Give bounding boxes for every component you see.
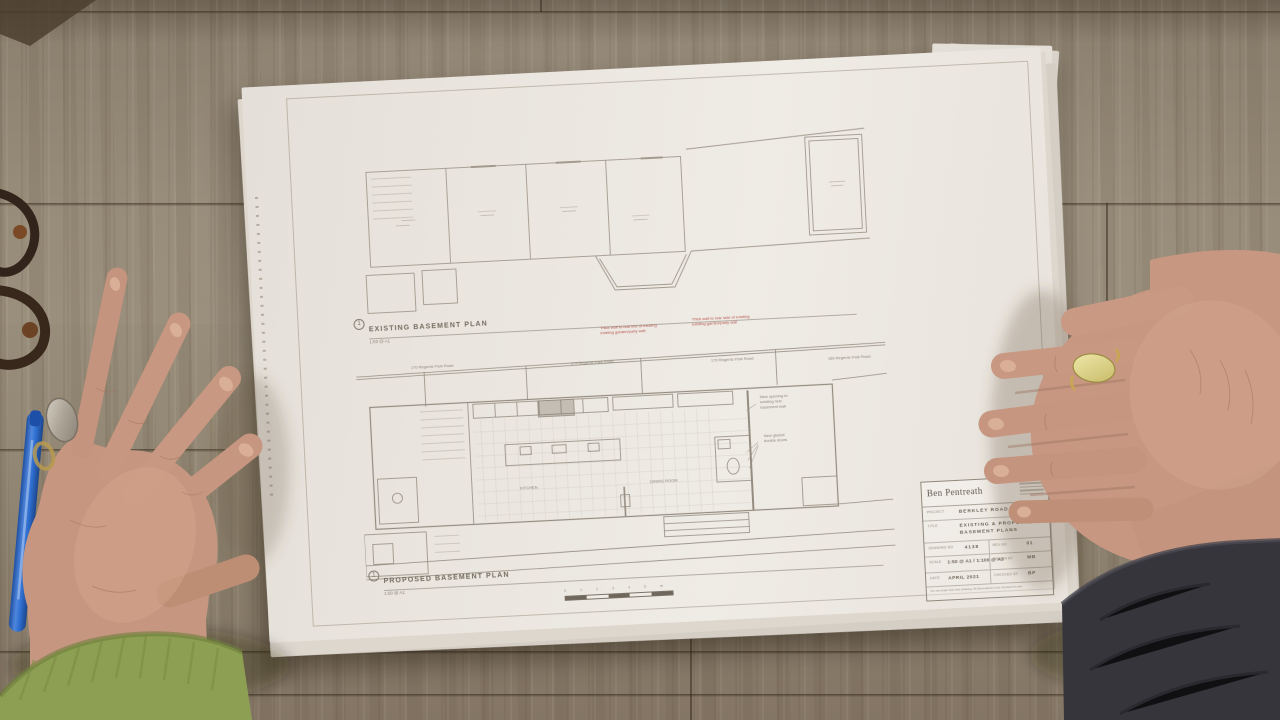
drawing-sheet: 1 EXISTING BASEMENT PLAN 1:50 @ A1 Thick…: [241, 47, 1068, 643]
photo-scene: 1 EXISTING BASEMENT PLAN 1:50 @ A1 Thick…: [0, 0, 1280, 720]
plan-marker: 1: [368, 570, 380, 582]
existing-basement-plan-drawing: [348, 92, 872, 318]
plan-marker: 1: [353, 319, 365, 331]
wood-seam: [0, 651, 1280, 654]
wood-seam: [0, 11, 1280, 14]
drawing-sheet-stack: 1 EXISTING BASEMENT PLAN 1:50 @ A1 Thick…: [241, 47, 1068, 643]
wood-seam: [148, 651, 150, 720]
annotation-doors: New glazed double doors: [764, 432, 788, 444]
wood-seam: [1106, 203, 1108, 451]
architect-brand: Ben Pentreath: [927, 486, 983, 499]
wood-seam: [0, 694, 1280, 697]
title-block: Ben Pentreath PROJECT BERKLEY ROAD TITLE…: [920, 475, 1054, 601]
room-label-kitchen: KITCHEN: [520, 485, 538, 491]
proposed-plan-title: PROPOSED BASEMENT PLAN: [383, 572, 509, 585]
existing-plan-title: EXISTING BASEMENT PLAN: [369, 320, 488, 333]
annotation-opening: New opening to existing rear basement wa…: [760, 393, 789, 410]
wood-seam: [540, 0, 542, 12]
address-block: [1019, 482, 1044, 497]
scale-unit: m: [660, 584, 667, 588]
